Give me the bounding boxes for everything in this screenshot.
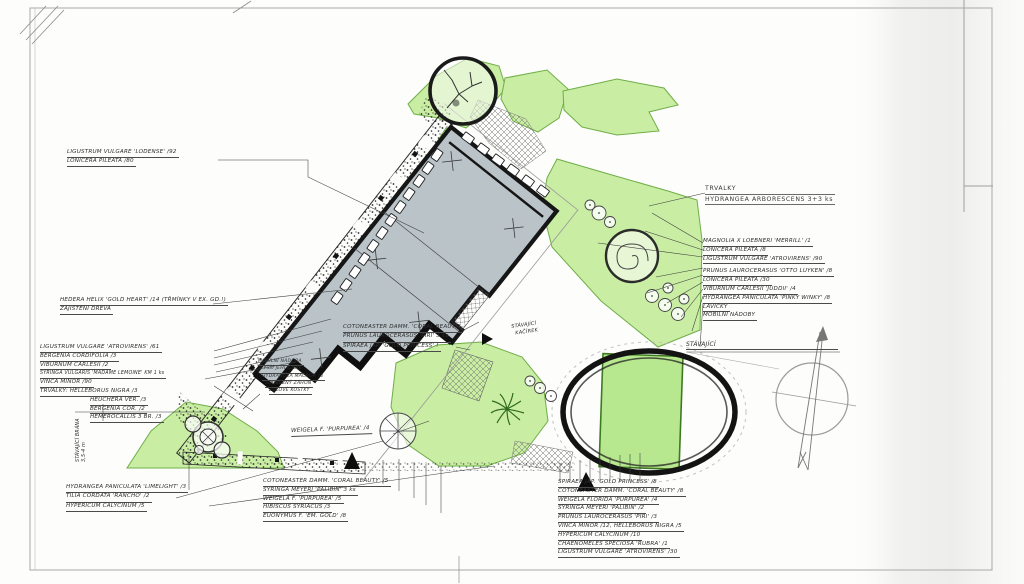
tree-spokes — [380, 413, 416, 449]
plant-label: SPIRAEA JAP. 'GOLD PRINCESS' ! — [343, 343, 441, 352]
plant-label: WEIGELA F. 'PURPUREA' /5 — [263, 496, 344, 505]
plant-label: HEDERA HELIX 'GOLD HEART' /14 (TŘMÍNKY V… — [60, 297, 228, 306]
plant-label: MOBILNÍ NÁDOBY — [703, 312, 757, 321]
plant-label: COTONEASTER DAMM. 'CORAL BEAUTY' — [343, 324, 463, 333]
plant-label: VINCA MINOR /90 — [40, 379, 94, 388]
plant-label: ZAJIŠTĚNÍ DŘEVA — [60, 306, 113, 315]
existing-tree-top — [430, 58, 496, 124]
plant-label: EUONYMUS F. 'EM. GOLD' /8 — [263, 513, 348, 522]
bench-lawn-rect — [599, 354, 683, 470]
plant-label: LONICERA PILEATA /80 — [67, 158, 136, 167]
plant-label: HYPERICUM CALYCINUM /10 — [558, 532, 642, 541]
plant-label: PRUNUS LAUROCERASUS 'PIRI' /3 — [558, 514, 659, 523]
plant-label: COTONEASTER DAMM. 'CORAL BEAUTY' /8 — [558, 488, 686, 497]
plant-list-bottom-left: HYDRANGEA PANICULATA 'LIMELIGHT' /3 TILI… — [66, 484, 188, 512]
trvalky-item: HYDRANGEA ARBORESCENS 3+3 ks — [705, 195, 835, 206]
gate-note-line: 3,5-4 m — [82, 418, 88, 462]
plant-label: LIGUSTRUM VULGARE 'ATROVIRENS' /30 — [558, 549, 680, 558]
note-line: STÁVAJÍCÍ — [686, 341, 838, 350]
scan-shadow — [845, 0, 1024, 584]
existing-note: STÁVAJÍCÍ — [686, 341, 838, 350]
plant-label: PRUNUS LAUROCERASUS 'OTTO LUYKEN' /8 — [703, 268, 834, 277]
trvalky-title: TRVALKY — [705, 184, 835, 195]
tree-spiral — [606, 230, 658, 282]
plant-label: VINCA MINOR /12, HELLEBORUS NIGRA /5 — [558, 523, 684, 532]
plant-label: HYDRANGEA PANICULATA 'LIMELIGHT' /3 — [66, 484, 188, 493]
gate-note: STÁVAJÍCÍ BRÁNA 3,5-4 m — [76, 418, 88, 462]
plant-label: PRUNUS LAUROCERASUS 'PIRI' 3 ks — [343, 333, 451, 342]
container-note: MOBILNÍ NÁDOBA VYŠŠÍ JEHLIČŇÁK HYDRANGEA… — [258, 359, 325, 395]
plant-list-left-2: LIGUSTRUM VULGARE 'ATROVIRENS' /61 BERGE… — [40, 344, 166, 423]
plant-label: HEMEROCALLIS 3 BR. /3 — [90, 414, 164, 423]
plant-label: HIBISCUS SYRIACUS /3 — [263, 504, 332, 513]
plant-label: BERGENIA COR. /2 — [90, 406, 147, 415]
plant-label: LONICERA PILEATA /30 — [703, 277, 772, 286]
plant-list-bottom-center: COTONEASTER DAMM. 'CORAL BEAUTY' /5 SYRI… — [263, 478, 391, 522]
plant-label: TILIA CORDATA 'RANCHO' /2 — [66, 493, 152, 502]
plant-list-right: MAGNOLIA X LOEBNERI 'MERRILL' /1 LONICER… — [703, 238, 834, 321]
plant-list-top-left: LIGUSTRUM VULGARE 'LODENSE' /92 LONICERA… — [67, 149, 179, 167]
plant-label: HEUCHERA VER. /3 — [90, 397, 148, 406]
plant-label: SYRINGA VULGARIS 'MADAME LEMOINE' KM 1 k… — [40, 370, 166, 379]
note-line: HYDRANGEA MACROP. /4 — [262, 374, 325, 381]
plant-label: LIGUSTRUM VULGARE 'ATROVIRENS' /61 — [40, 344, 162, 353]
plant-label: BERGENIA CORDIFOLIA /3 — [40, 353, 119, 362]
plant-list-left-1: HEDERA HELIX 'GOLD HEART' /14 (TŘMÍNKY V… — [60, 297, 228, 315]
plant-label: LIGUSTRUM VULGARE 'ATROVIRENS' /90 — [703, 256, 825, 265]
plant-label: LONICERA PILEATA /8 — [703, 247, 768, 256]
landscape-plan-sheet: LIGUSTRUM VULGARE 'LODENSE' /92 LONICERA… — [0, 0, 1024, 584]
trvalky-header-block: TRVALKY HYDRANGEA ARBORESCENS 3+3 ks — [705, 184, 835, 205]
plant-label: WEIGELA FLORIDA 'PURPUREA' /4 — [558, 497, 659, 506]
plant-label: LIGUSTRUM VULGARE 'LODENSE' /92 — [67, 149, 179, 158]
plant-label: HYDRANGEA PANICULATA 'PINKY WINKY' /8 — [703, 295, 832, 304]
note-line: ŽULOVÉ KOSTKY — [269, 388, 312, 395]
note-line: VYŠŠÍ JEHLIČŇÁK — [260, 366, 304, 373]
plant-label: MAGNOLIA X LOEBNERI 'MERRILL' /1 — [703, 238, 813, 247]
plant-label: SPIRAEA JAP. 'GOLD PRINCESS' /8 — [558, 479, 659, 488]
plant-list-bottom-right: SPIRAEA JAP. 'GOLD PRINCESS' /8 COTONEAS… — [558, 479, 686, 558]
plant-label: SYRINGA MEYERI 'PALIBIN' /2 — [558, 505, 646, 514]
plant-label: SYRINGA MEYERI 'PALIBIN' 3 ks — [263, 487, 358, 496]
plant-label: COTONEASTER DAMM. 'CORAL BEAUTY' /5 — [263, 478, 391, 487]
plant-label: VIBURNUM CARLESII 'JUDDII' /4 — [703, 286, 798, 295]
plant-label: VIBURNUM CARLESII /2 — [40, 362, 111, 371]
center-planting-note: COTONEASTER DAMM. 'CORAL BEAUTY' PRUNUS … — [343, 324, 463, 352]
plant-label: HYPERICUM CALYCINUM /5 — [66, 503, 147, 512]
plant-label: TRVALKY: HELLEBORUS NIGRA /3 — [40, 388, 140, 397]
plant-label: CHAENOMELES SPECIOSA 'RUBRA' /1 — [558, 541, 670, 550]
